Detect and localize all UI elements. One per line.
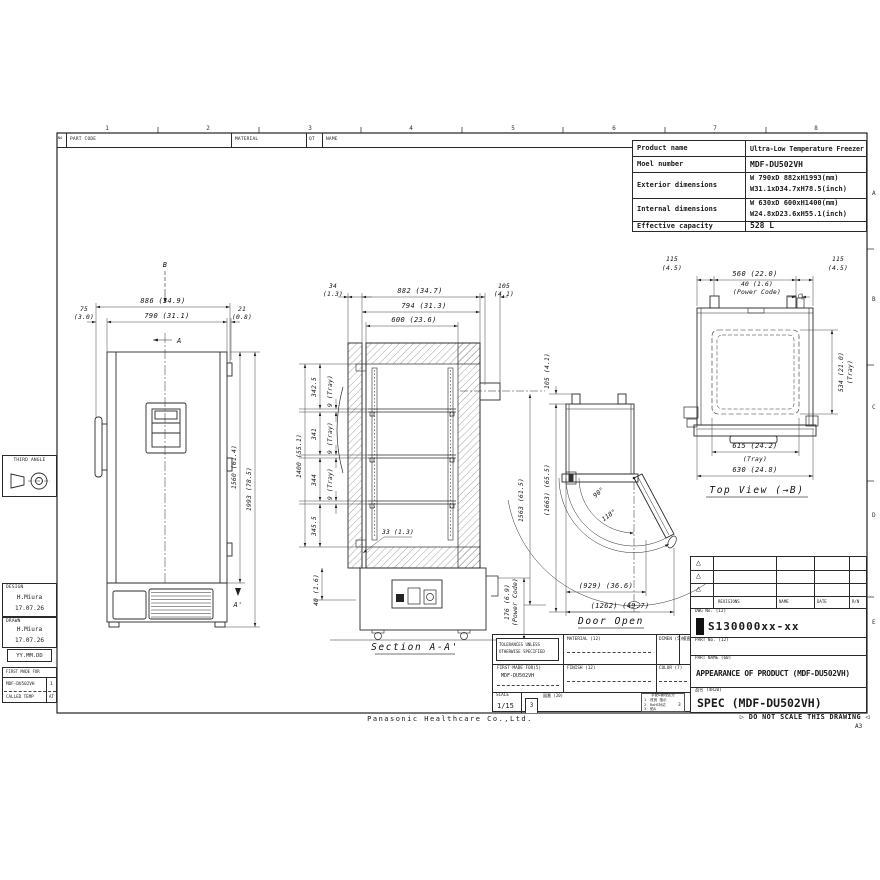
part-no-label: PART No. (12) [695,639,729,644]
shelf [368,409,456,508]
angle-118: 118° [600,508,618,524]
door-top [694,425,816,436]
third-angle-icon [8,469,52,493]
tolerances-box: TOLERANCES UNLESS OTHERWISE SPECIFIED [496,638,559,661]
dim-344: 344 [311,474,318,487]
dimen-label: DIMEN (5) [659,638,682,643]
spec-row-label: Effective capacity [637,223,713,231]
dim-40: 40 (1.6) [313,574,320,606]
freezer-cabinet-outline [107,352,227,622]
rev-no: 3 [526,703,537,710]
dim-105: 105 (4.1) [544,353,551,389]
dim-34-inch: (1.3) [323,291,343,298]
dim-tray: 9 (Tray) [327,422,334,454]
dim-886: 886 (34.9) [140,297,185,305]
spec-title: SPEC (MDF-DU502VH) [697,697,822,710]
cabinet-plan [566,404,634,474]
door-open-labels: 105 (4.1) (1663) (65.5) 1563 (61.5) 90° … [518,353,649,627]
dim-1563: 1563 (61.5) [518,478,525,522]
tray-hidden [717,335,794,409]
paper-size: A3 [855,724,862,731]
latch-top [684,407,698,418]
hinge-top [806,416,818,426]
mgmt-table: 手配&管理区分 1 改良 指示 2 RoHS対応 3 3 鉛A [641,693,685,712]
product-spec-table: Product name Ultra-Low Temperature Freez… [632,140,867,232]
door-latch [569,475,574,482]
name-label: NAME [779,600,789,604]
dim-1663: (1663) (65.5) [544,464,551,516]
label-a-prime: A' [232,601,242,609]
dim-600: 600 (23.6) [391,316,436,324]
zone-letter: E [872,619,876,626]
zone-number: 4 [409,125,413,132]
inner-chamber-hidden [712,330,799,414]
first-made-for-value: MDF-DU502VH [501,674,534,680]
access-panel [113,591,146,619]
zone-letter: A [872,190,876,197]
zone-letter: B [872,296,876,303]
title-block: △ △ △ REVISIONS NAME DATE R/N DWG No. (1… [690,556,867,713]
zone-number: 7 [713,125,717,132]
dim-615-tray: (Tray) [743,456,767,463]
dim-630: 630 (24.8) [732,466,777,474]
section-title: Section A-A' [371,642,459,653]
dim-21-inch: (0.8) [232,314,252,321]
machine-compartment [360,568,486,630]
spec-row-value2: W31.1xD34.7xH78.5(inch) [750,186,847,194]
door-open-view [508,394,707,612]
date-label: DATE [817,600,827,604]
dim-794: 794 (31.3) [401,302,446,310]
drawn-label: DRAWN [6,620,21,625]
design-block: DESIGN H.Miura 17.07.26 [2,583,57,617]
dim-40: 40 (1.6) [741,281,773,288]
dim-115-left-inch: (4.5) [662,265,682,272]
spec-row-label: Product name [637,145,688,153]
rev-no-box: 3 [525,698,538,713]
dim-560: 560 (22.0) [732,270,777,278]
door-insulation [348,343,362,568]
dim-power-code: (Power Code) [733,289,781,296]
caster [375,633,382,640]
label-a: A [176,337,182,345]
col-qt: QT [309,138,315,143]
dim-342-5: 342.5 [311,377,318,398]
dim-115-right-inch: (4.5) [828,265,848,272]
zone-number: 3 [308,125,312,132]
dim-1262: (1262) (49.7) [591,602,650,610]
design-label: DESIGN [6,586,23,591]
dim-534-tray: (Tray) [847,360,854,384]
dim-345-5: 345.5 [311,516,318,537]
drawn-name: H.Miura [3,627,56,634]
dim-1400: 1400 (55.1) [296,434,303,478]
dim-1560: 1560 (61.4) [231,445,238,489]
dim-341: 341 [311,428,318,441]
dim-tray: 9 (Tray) [327,375,334,407]
angle-90: 90° [592,486,606,500]
revisions-table: △ △ △ REVISIONS NAME DATE R/N [691,557,866,608]
dim-21: 21 [238,306,246,313]
rn-label: R/N [852,600,859,604]
label-b: B [163,261,168,269]
revision-triangle-icon: △ [696,559,701,568]
drawn-date: 17.07.26 [3,638,56,645]
zone-number: 5 [511,125,515,132]
dim-power-code: (Power Code) [512,578,519,626]
part-name: APPEARANCE OF PRODUCT (MDF-DU502VH) [696,670,850,679]
zone-letter: D [872,512,876,519]
dim-176: 176 (6.9) [504,584,511,620]
hinge-post [787,296,796,308]
col-material: MATERIAL [235,138,258,143]
caster [461,633,468,640]
access-port [480,383,500,400]
dim-75: 75 [80,306,88,313]
company-name: Panasonic Healthcare Co.,Ltd. [320,716,580,724]
top-view [684,294,818,443]
zone-number: 2 [206,125,210,132]
dim-534: 534 (21.0) [838,352,845,392]
drawn-block: DRAWN H.Miura 17.07.26 [2,617,57,648]
first-made-for-label: FIRST MADE FOR [6,670,40,674]
zone-number: 6 [612,125,616,132]
spec-row-value: Ultra-Low Temperature Freezer [750,146,864,153]
color-label: COLOR (7) [659,667,682,672]
section-labels: 34 (1.3) 882 (34.7) 794 (31.3) 600 (23.6… [296,283,519,653]
door-handle [95,417,102,477]
top-view-labels: 115 (4.5) 560 (22.0) 115 (4.5) 40 (1.6) … [662,256,854,496]
dim-105-inch: (4.1) [494,291,514,298]
hinge-post [710,296,719,308]
date-format: YY.MM.DD [8,653,51,659]
hinge-post [618,394,626,404]
foot [215,622,225,627]
dim-1993: 1993 (78.5) [246,467,253,511]
dim-33: 33 (1.3) [381,529,414,536]
dim-105: 105 [498,283,510,290]
first-made-for-label: FIRST MADE FOR(5) [497,667,541,672]
spec-row-value: W 630xD 600xH1400(mm) [750,200,839,208]
power-cord [797,298,804,308]
dim-34: 34 [328,283,337,290]
handle-profile [337,387,343,473]
design-name: H.Miura [3,595,56,602]
power-cord-hook [486,576,498,596]
tolerances-line2: OTHERWISE SPECIFIED [499,650,545,654]
top-view-dimensions [697,276,838,497]
parts-list-header: NO PART CODE MATERIAL QT NAME [57,133,632,148]
spec-row-label: Moel number [637,161,683,169]
dim-929: (929) (36.6) [579,582,633,590]
finish-label: FINISH (12) [567,667,595,672]
hinge-post [572,394,580,404]
dwg-no-label: DWG No. (12) [695,610,726,615]
mgmt-value: 3 [678,704,681,709]
mgmt-row-no: 3 [644,708,646,712]
spec-row-label: Exterior dimensions [637,182,717,190]
scale-value: 1/15 [497,703,514,711]
bottom-info-block: TOLERANCES UNLESS OTHERWISE SPECIFIED MA… [492,634,690,712]
drawing-canvas: 1 2 3 4 5 6 7 8 A B C D E [0,0,880,880]
hinge [227,543,232,556]
zone-letters: A B C D E [872,190,876,626]
called-temp-label: CALLED TEMP [6,695,34,700]
dim-882: 882 (34.7) [397,287,442,295]
dim-tray: 9 (Tray) [327,468,334,500]
mgmt-row-text: 鉛A [650,708,656,712]
cabinet-top-outline [697,308,813,425]
spec-row-value: MDF-DU502VH [750,161,803,170]
third-angle-block: THIRD ANGLE [2,455,57,497]
called-temp-value: AT [49,695,54,700]
dwg-no: S130000xx-xx [708,621,799,633]
dim-115-left: 115 [666,256,678,263]
material-label: MATERIAL (12) [567,638,601,643]
hinmei-label: 品名 (4R20) [695,689,722,694]
door-open-title: Door Open [577,616,644,627]
third-angle-label: THIRD ANGLE [3,459,56,464]
zone-number: 8 [814,125,818,132]
ventilation-grille [149,589,213,619]
drawing-sheet: 1 2 3 4 5 6 7 8 A B C D E [0,0,880,880]
door-open-118 [634,474,674,538]
col-part-code: PART CODE [70,138,96,143]
tolerances-line1: TOLERANCES UNLESS [499,643,540,647]
revision-triangle-icon: △ [696,572,701,581]
date-format-block: YY.MM.DD [2,648,57,664]
front-view-labels: B A A' 886 (34.9) 75 (3.0) 790 (31.1) 21… [74,261,253,609]
spec-row-value2: W24.8xD23.6xH55.1(inch) [750,211,847,219]
section-arrow-a-prime [235,588,241,596]
design-date: 17.07.26 [3,606,56,613]
dwg-no-marker [696,618,704,635]
revisions-label: REVISIONS [718,600,740,604]
top-view-title: Top View (→B) [709,485,804,496]
zuban-label: 図番 (20) [543,694,563,698]
front-view [95,271,241,627]
zone-number: 1 [105,125,109,132]
revision-triangle-icon: △ [696,585,701,594]
first-made-for-model: MDF-DU502VH [6,683,34,688]
col-name: NAME [326,138,338,143]
spec-row-value: 528 L [750,222,774,231]
spec-row-label: Internal dimensions [637,206,717,214]
dim-75-inch: (3.0) [74,314,94,321]
dim-615: 615 (24.2) [732,442,777,450]
spec-row-value: W 790xD 882xH1993(mm) [750,175,839,183]
zone-letter: C [872,404,876,411]
foot [109,622,119,627]
hinge [227,363,232,376]
scale-label: SCALE [496,694,509,699]
dim-790: 790 (31.1) [144,312,189,320]
first-made-for-qty: 1 [50,683,53,688]
dim-115-right: 115 [832,256,844,263]
no-scale-note: ▷ DO NOT SCALE THIS DRAWING ◁ [718,714,870,721]
first-made-for-block: FIRST MADE FOR MDF-DU502VH 1 CALLED TEMP… [2,667,57,703]
col-no: NO [58,137,63,141]
part-name-label: PART NAME (60) [695,657,731,662]
